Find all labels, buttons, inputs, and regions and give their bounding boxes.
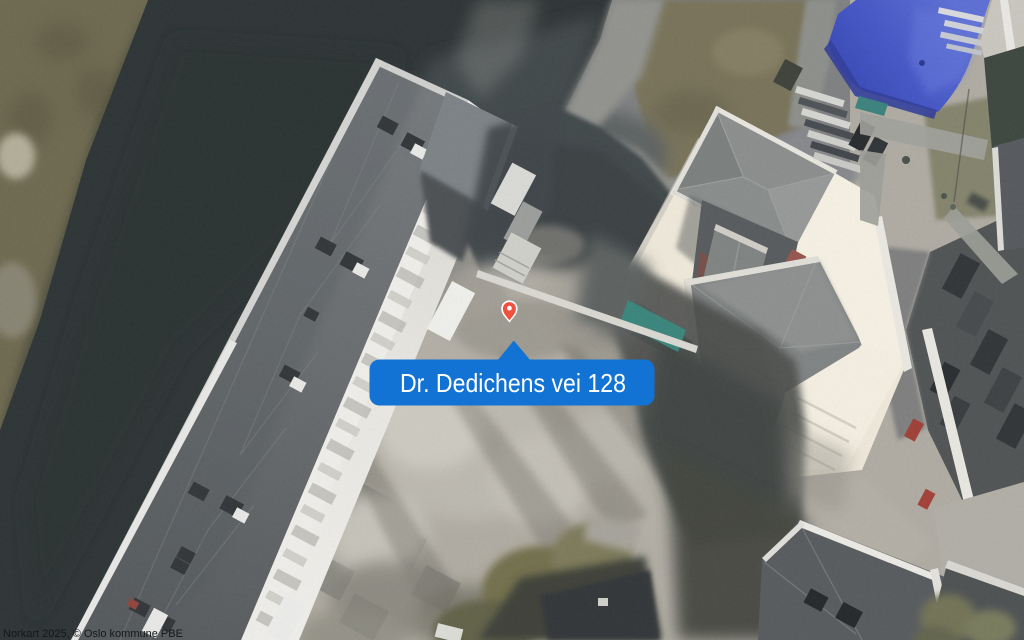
svg-text:Dr. Dedichens vei 128: Dr. Dedichens vei 128 — [400, 368, 626, 398]
svg-text:Norkart 2025, © Oslo kommune P: Norkart 2025, © Oslo kommune PBE — [3, 628, 183, 640]
